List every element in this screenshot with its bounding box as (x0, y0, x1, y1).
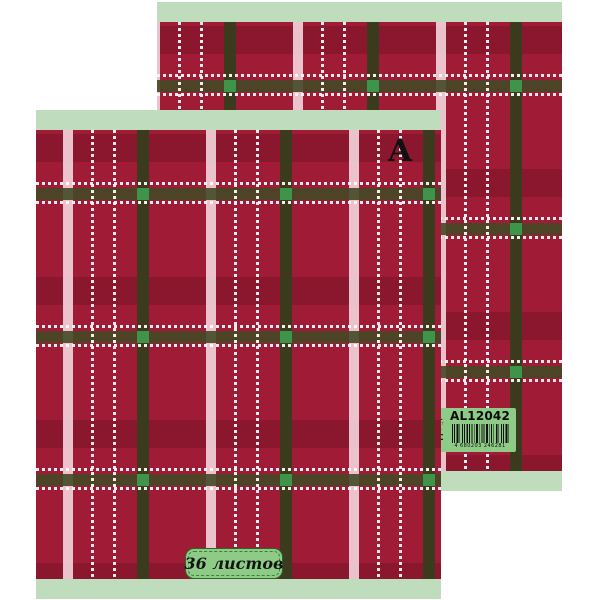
sticker-barcode-block: AL12042 4 680203 246281 (447, 410, 513, 450)
sticker-sku: AL12042 (450, 410, 510, 423)
barcode-digits: 4 680203 246281 (454, 444, 505, 449)
front-cover-plaid-pattern (36, 130, 441, 579)
sheets-count-tab: 36 листов (185, 548, 283, 579)
back-cover-top-strip (157, 2, 562, 22)
product-image-canvas: A Альт 5+ ЕАС AL12042 4 680203 246281 A … (0, 0, 600, 600)
barcode-sticker: A Альт 5+ ЕАС AL12042 4 680203 246281 (428, 408, 516, 452)
front-cover-top-strip (36, 110, 441, 130)
front-cover-bottom-strip (36, 579, 441, 599)
notebook-front-cover: A 36 листов (36, 110, 441, 599)
sheets-count-label: 36 листов (184, 554, 283, 573)
brand-letter: A (388, 136, 412, 167)
sheets-count-tab-border: 36 листов (188, 551, 280, 576)
barcode-image (452, 424, 509, 443)
